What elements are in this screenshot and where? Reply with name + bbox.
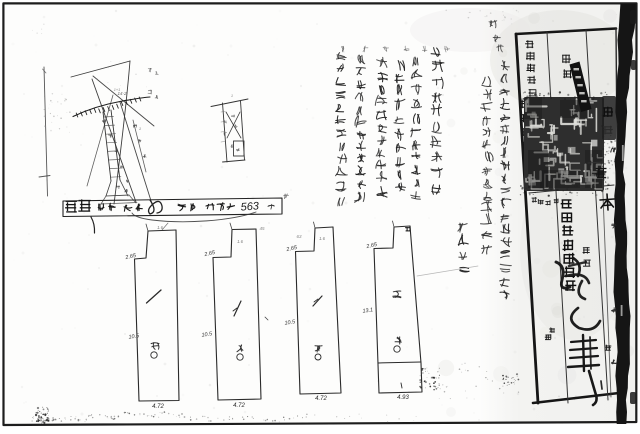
svg-text:4.93: 4.93 xyxy=(397,395,409,401)
svg-text:1.6: 1.6 xyxy=(237,239,243,244)
svg-text:45: 45 xyxy=(259,226,265,231)
svg-text:4.72: 4.72 xyxy=(315,396,327,402)
svg-text:1.6: 1.6 xyxy=(319,236,325,241)
svg-text:1: 1 xyxy=(231,93,233,98)
svg-text:14·2: 14·2 xyxy=(117,91,127,96)
svg-text:1.6: 1.6 xyxy=(157,225,163,230)
svg-text:4.72: 4.72 xyxy=(233,403,245,409)
svg-text:63: 63 xyxy=(296,234,302,239)
svg-text:1: 1 xyxy=(139,126,141,131)
svg-text:563: 563 xyxy=(240,200,260,213)
svg-text:4.72: 4.72 xyxy=(152,404,164,410)
